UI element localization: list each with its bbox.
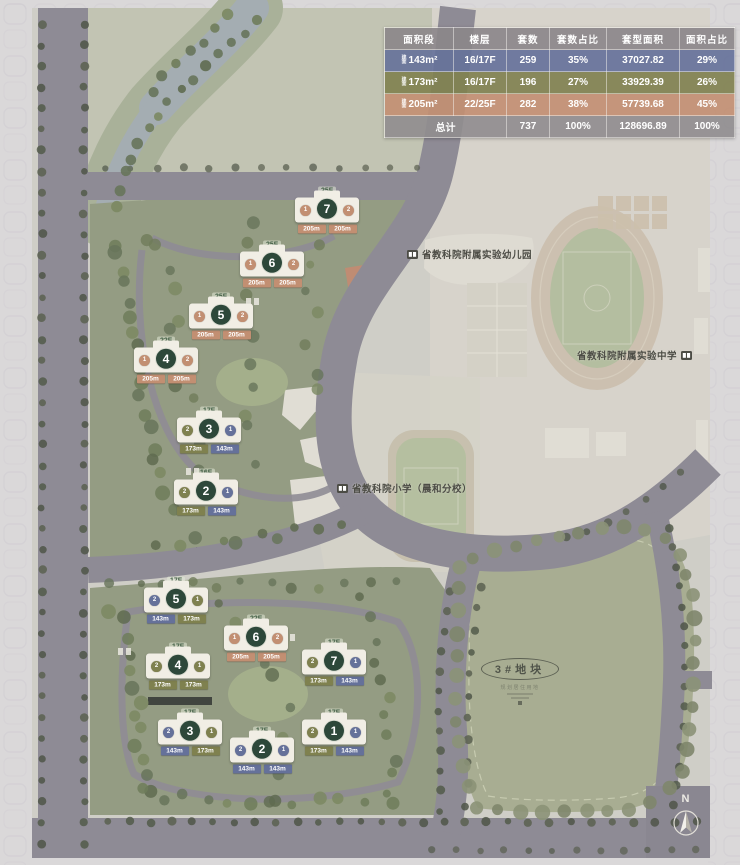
tree-dot — [80, 461, 87, 468]
tree-dot — [177, 355, 189, 367]
table-total-cell: 737 — [507, 116, 550, 138]
tree-dot — [166, 266, 175, 275]
tree-dot — [545, 818, 554, 827]
tree-dot — [435, 708, 442, 715]
tree-dot — [223, 799, 232, 808]
tree-dot — [340, 579, 349, 588]
tree-dot — [144, 420, 159, 435]
tree-dot — [127, 739, 141, 753]
tree-dot — [622, 803, 636, 817]
tree-dot — [80, 735, 88, 743]
tree-dot — [241, 30, 250, 39]
parcel-3-sublabel: 规划居住用地 — [452, 684, 588, 691]
tree-dot — [145, 123, 154, 132]
tree-dot — [462, 779, 477, 794]
table-cell: 22/25F — [454, 94, 507, 116]
tree-dot — [79, 294, 87, 302]
tree-dot — [81, 357, 89, 365]
tree-dot — [460, 818, 469, 827]
tree-dot — [398, 818, 406, 826]
tree-dot — [452, 560, 466, 574]
tree-dot — [79, 609, 88, 618]
table-header-cell: 套数占比 — [550, 28, 607, 50]
table-total-cell: 总计 — [385, 116, 507, 138]
tree-dot — [436, 727, 443, 734]
tree-dot — [164, 323, 176, 335]
tree-dot — [39, 692, 46, 699]
tree-dot — [387, 797, 400, 810]
tree-dot — [283, 164, 290, 171]
tree-dot — [171, 59, 180, 68]
tree-dot — [587, 818, 596, 827]
tree-dot — [358, 818, 365, 825]
tree-dot — [315, 819, 322, 826]
tree-dot — [194, 439, 206, 451]
tree-dot — [436, 786, 445, 795]
tree-dot — [580, 804, 594, 818]
tree-dot — [443, 607, 451, 615]
tree-dot — [209, 818, 216, 825]
primary-school-label-text: 省教科院小学（晨和分校） — [352, 481, 472, 495]
tree-dot — [39, 755, 46, 762]
tree-dot — [79, 145, 88, 154]
table-header-cell: 面积段 — [385, 28, 454, 50]
tree-dot — [199, 39, 208, 48]
tree-dot — [379, 710, 388, 719]
table-header-cell: 套型面积 — [607, 28, 680, 50]
tree-dot — [38, 714, 45, 721]
tree-dot — [680, 622, 688, 630]
tree-dot — [513, 805, 528, 820]
table-cell: 196 — [507, 72, 550, 94]
tree-dot — [435, 688, 442, 695]
table-cell: 建面205m² — [385, 94, 454, 116]
tree-dot — [620, 847, 628, 855]
tree-dot — [38, 126, 45, 133]
school-icon — [407, 250, 418, 259]
tree-dot — [477, 583, 486, 592]
tree-dot — [332, 793, 343, 804]
tree-dot — [312, 369, 324, 381]
tree-dot — [80, 777, 87, 784]
north-letter: N — [664, 793, 708, 805]
tree-dot — [155, 486, 170, 501]
tree-dot — [337, 520, 346, 529]
tree-dot — [227, 38, 236, 47]
tree-dot — [79, 377, 88, 386]
tree-dot — [149, 87, 159, 97]
tree-dot — [242, 237, 254, 249]
tree-dot — [102, 165, 108, 171]
tree-dot — [104, 818, 111, 825]
tree-dot — [286, 583, 297, 594]
table-cell: 26% — [680, 72, 735, 94]
tree-dot — [464, 714, 472, 722]
tree-dot — [79, 756, 87, 764]
tree-dot — [365, 611, 376, 622]
tree-dot — [168, 504, 180, 516]
tree-dot — [314, 792, 327, 805]
tree-dot — [241, 256, 253, 268]
tree-dot — [204, 795, 213, 804]
tree-dot — [361, 798, 370, 807]
tree-dot — [535, 805, 550, 820]
tree-dot — [38, 777, 45, 784]
tree-dot — [665, 524, 674, 533]
tree-dot — [314, 584, 324, 594]
tree-dot — [37, 84, 45, 92]
tree-dot — [492, 804, 503, 815]
tree-dot — [673, 548, 687, 562]
tree-dot — [252, 626, 265, 639]
tree-dot — [304, 208, 314, 218]
tree-dot — [79, 525, 87, 533]
tree-dot — [180, 163, 188, 171]
table-cell: 38% — [550, 94, 607, 116]
tree-dot — [81, 546, 89, 554]
table-cell: 57739.68 — [607, 94, 680, 116]
tree-dot — [81, 231, 88, 238]
tree-dot — [505, 818, 511, 824]
school-icon — [681, 351, 692, 360]
tree-dot — [125, 298, 136, 309]
tree-dot — [500, 846, 507, 853]
tree-dot — [467, 553, 479, 565]
tree-dot — [136, 365, 147, 376]
unit-mix-table: 面积段楼层套数套数占比套型面积面积占比建面143m²16/17F25935%37… — [384, 27, 735, 138]
tree-dot — [39, 609, 46, 616]
tree-dot — [155, 467, 166, 478]
tree-dot — [200, 60, 211, 71]
tree-dot — [168, 282, 182, 296]
tree-dot — [461, 803, 469, 811]
tree-dot — [393, 577, 401, 585]
tree-dot — [147, 454, 159, 466]
tree-dot — [39, 651, 46, 658]
tree-dot — [117, 610, 131, 624]
tree-dot — [154, 165, 162, 173]
tree-dot — [39, 295, 46, 302]
tree-dot — [269, 795, 281, 807]
tree-dot — [169, 379, 182, 392]
tree-dot — [104, 578, 114, 588]
tree-dot — [676, 582, 683, 589]
tree-dot — [39, 565, 47, 573]
tree-dot — [554, 531, 566, 543]
tree-dot — [122, 633, 134, 645]
tree-dot — [290, 523, 299, 532]
tree-dot — [137, 783, 148, 794]
tree-dot — [138, 580, 145, 587]
tree-dot — [437, 768, 444, 775]
tree-dot — [236, 578, 243, 585]
tree-dot — [39, 546, 46, 553]
table-cell: 建面173m² — [385, 72, 454, 94]
tree-dot — [37, 145, 46, 154]
tree-dot — [81, 253, 88, 260]
tree-dot — [151, 540, 161, 550]
tree-dot — [222, 9, 233, 20]
tree-dot — [186, 45, 196, 55]
tree-dot — [384, 692, 395, 703]
tree-dot — [314, 239, 325, 250]
tree-dot — [79, 210, 88, 219]
tree-dot — [549, 848, 555, 854]
tree-dot — [162, 97, 171, 106]
tree-dot — [629, 818, 638, 827]
garage-entrance-bar — [148, 697, 212, 705]
table-header-cell: 套数 — [507, 28, 550, 50]
tree-dot — [131, 138, 143, 150]
tree-dot — [526, 847, 533, 854]
table-cell: 37027.82 — [607, 50, 680, 72]
tree-dot — [686, 588, 700, 602]
tree-dot — [37, 168, 46, 177]
tree-dot — [158, 580, 168, 590]
tree-dot — [81, 104, 89, 112]
tree-dot — [39, 229, 48, 238]
tree-dot — [79, 335, 88, 344]
tree-dot — [80, 840, 88, 848]
table-cell: 35% — [550, 50, 607, 72]
tree-dot — [473, 604, 480, 611]
tree-dot — [260, 659, 270, 669]
table-cell: 29% — [680, 50, 735, 72]
tree-dot — [80, 818, 88, 826]
tree-dot — [601, 805, 613, 817]
tree-dot — [212, 583, 222, 593]
tree-dot — [189, 531, 202, 544]
school-icon — [337, 484, 348, 493]
tree-dot — [178, 85, 186, 93]
tree-dot — [441, 628, 449, 636]
tree-dot — [471, 627, 479, 635]
tree-dot — [232, 164, 240, 172]
tree-dot — [369, 658, 379, 668]
tree-dot — [306, 261, 314, 269]
tree-dot — [643, 796, 657, 810]
tree-dot — [597, 847, 604, 854]
tree-dot — [309, 164, 317, 172]
tree-dot — [141, 769, 153, 781]
tree-dot — [336, 818, 343, 825]
table-cell: 16/17F — [454, 50, 507, 72]
tree-dot — [123, 311, 137, 325]
tree-dot — [644, 847, 650, 853]
tree-dot — [373, 638, 381, 646]
tree-dot — [38, 43, 45, 50]
tree-dot — [436, 667, 445, 676]
tree-dot — [39, 463, 47, 471]
middle-school-label: 省教科院附属实验中学 — [577, 348, 692, 362]
tree-dot — [247, 330, 260, 343]
tree-dot — [390, 755, 403, 768]
tree-dot — [481, 817, 490, 826]
tree-dot — [231, 819, 238, 826]
tree-dot — [244, 797, 257, 810]
tree-dot — [596, 522, 609, 535]
tree-dot — [355, 592, 364, 601]
table-total-cell: 128696.89 — [607, 116, 680, 138]
tree-dot — [37, 313, 46, 322]
tree-dot — [38, 819, 45, 826]
tree-dot — [154, 112, 163, 121]
tree-dot — [312, 383, 324, 395]
tree-dot — [675, 764, 690, 779]
tree-dot — [300, 339, 311, 350]
tree-dot — [313, 524, 324, 535]
tree-dot — [251, 460, 260, 469]
primary-school-label: 省教科院小学（晨和分校） — [337, 481, 472, 495]
tree-dot — [39, 272, 46, 279]
area-prefix: 建面 — [401, 56, 408, 65]
tree-dot — [156, 70, 167, 81]
tree-dot — [135, 722, 146, 733]
parcel-3-microtext — [511, 697, 529, 699]
tree-dot — [220, 537, 228, 545]
parcel-3-stamp — [518, 701, 522, 705]
tree-dot — [470, 801, 483, 814]
area-prefix: 建面 — [401, 78, 408, 87]
tree-dot — [39, 377, 48, 386]
table-cell: 259 — [507, 50, 550, 72]
tree-dot — [126, 155, 137, 166]
tree-dot — [268, 578, 276, 586]
tree-dot — [38, 336, 46, 344]
kindergarten-label: 省教科院附属实验幼儿园 — [407, 247, 532, 261]
tree-dot — [301, 287, 309, 295]
tree-dot — [81, 694, 88, 701]
tree-dot — [111, 201, 122, 212]
tree-dot — [121, 166, 131, 176]
tree-dot — [687, 701, 699, 713]
tree-dot — [453, 846, 460, 853]
tree-dot — [286, 703, 296, 713]
tree-dot — [80, 589, 87, 596]
sports-field — [550, 228, 644, 368]
tree-dot — [80, 631, 87, 638]
tree-dot — [80, 40, 89, 49]
tree-dot — [80, 62, 89, 71]
tree-dot — [650, 818, 659, 827]
tree-dot — [452, 735, 466, 749]
tree-dot — [39, 672, 46, 679]
tree-dot — [239, 311, 251, 323]
tree-dot — [381, 729, 392, 740]
table-cell: 282 — [507, 94, 550, 116]
tree-dot — [126, 817, 134, 825]
tree-dot — [126, 326, 139, 339]
tree-dot — [39, 440, 47, 448]
tree-dot — [38, 588, 47, 597]
tree-dot — [80, 315, 89, 324]
table-header-cell: 面积占比 — [680, 28, 735, 50]
tree-dot — [681, 642, 688, 649]
tree-dot — [419, 818, 428, 827]
tree-dot — [287, 801, 296, 810]
tree-dot — [428, 846, 435, 853]
tree-dot — [38, 630, 45, 637]
tree-dot — [572, 527, 584, 539]
table-cell: 45% — [680, 94, 735, 116]
tree-dot — [294, 818, 303, 827]
tree-dot — [189, 393, 199, 403]
tree-dot — [174, 540, 186, 552]
parcel-3-label: 3#地块 规划居住用地 — [452, 658, 588, 705]
tree-dot — [247, 216, 260, 229]
tree-dot — [510, 541, 522, 553]
tree-dot — [188, 75, 198, 85]
tree-dot — [617, 519, 632, 534]
tree-dot — [81, 127, 88, 134]
tree-dot — [668, 846, 675, 853]
tree-dot — [79, 651, 87, 659]
tree-dot — [190, 426, 200, 436]
tree-dot — [38, 735, 45, 742]
tree-dot — [679, 742, 694, 757]
tree-dot — [692, 846, 699, 853]
tree-dot — [678, 604, 685, 611]
tree-dot — [38, 357, 45, 364]
tree-dot — [387, 768, 397, 778]
tree-dot — [436, 808, 443, 815]
tree-dot — [80, 713, 89, 722]
tree-dot — [277, 744, 290, 757]
tree-dot — [436, 746, 445, 755]
tree-dot — [362, 165, 369, 172]
tree-dot — [81, 190, 88, 197]
table-cell: 33929.39 — [607, 72, 680, 94]
tree-dot — [265, 668, 279, 682]
tree-dot — [682, 722, 696, 736]
tree-dot — [124, 665, 135, 676]
tree-dot — [383, 790, 391, 798]
parcel-3-label-text: 3#地块 — [481, 658, 559, 680]
tree-dot — [132, 389, 144, 401]
tree-dot — [81, 21, 89, 29]
tree-dot — [134, 375, 148, 389]
tree-dot — [129, 710, 140, 721]
tree-dot — [39, 483, 46, 490]
tree-dot — [37, 840, 46, 849]
table-cell: 建面143m² — [385, 50, 454, 72]
tree-dot — [660, 483, 667, 490]
tree-dot — [213, 49, 223, 59]
tree-dot — [188, 817, 196, 825]
tree-dot — [660, 533, 671, 544]
tree-dot — [456, 759, 471, 774]
tree-dot — [230, 617, 242, 629]
tree-dot — [81, 484, 87, 490]
tree-dot — [437, 647, 445, 655]
north-arrow: N — [664, 793, 708, 845]
tree-dot — [258, 529, 268, 539]
tree-dot — [229, 536, 243, 550]
table-total-cell: 100% — [680, 116, 735, 138]
tree-dot — [177, 789, 188, 800]
tree-dot — [38, 20, 47, 29]
tree-dot — [677, 469, 684, 476]
tree-dot — [272, 819, 280, 827]
tree-dot — [672, 564, 680, 572]
tree-dot — [686, 677, 701, 692]
tree-dot — [558, 804, 571, 817]
tree-dot — [450, 716, 461, 727]
table-total-cell: 100% — [550, 116, 607, 138]
tree-dot — [147, 819, 156, 828]
kindergarten-label-text: 省教科院附属实验幼儿园 — [422, 247, 532, 261]
tree-dot — [38, 189, 46, 197]
